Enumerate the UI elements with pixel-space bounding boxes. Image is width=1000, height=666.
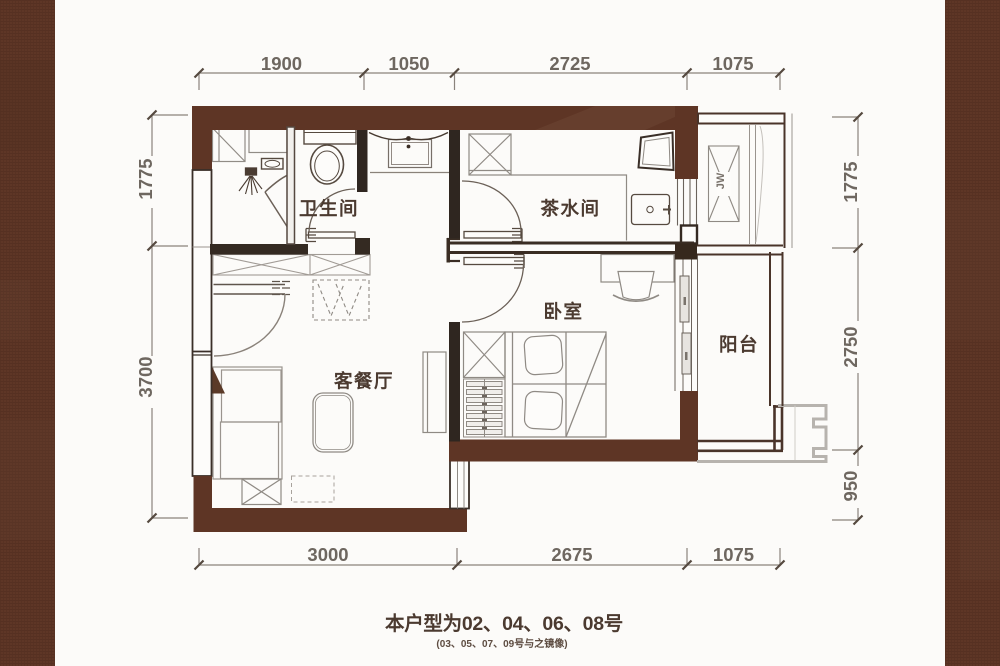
svg-text:1775: 1775 <box>135 158 156 199</box>
svg-text:2750: 2750 <box>840 326 861 367</box>
svg-text:1775: 1775 <box>840 161 861 202</box>
svg-text:3000: 3000 <box>307 544 348 565</box>
svg-text:3700: 3700 <box>135 356 156 397</box>
svg-text:客餐厅: 客餐厅 <box>334 371 394 392</box>
svg-text:2675: 2675 <box>551 544 592 565</box>
svg-text:茶水间: 茶水间 <box>540 198 600 219</box>
svg-text:950: 950 <box>840 471 861 502</box>
svg-text:本户型为02、04、06、08号: 本户型为02、04、06、08号 <box>385 612 623 635</box>
svg-text:1075: 1075 <box>713 544 754 565</box>
svg-text:1075: 1075 <box>712 53 753 74</box>
svg-text:(03、05、07、09号与之镜像): (03、05、07、09号与之镜像) <box>436 637 567 650</box>
svg-text:卫生间: 卫生间 <box>299 198 359 219</box>
svg-text:1050: 1050 <box>388 53 429 74</box>
svg-text:2725: 2725 <box>549 53 590 74</box>
svg-text:JW: JW <box>715 172 727 189</box>
svg-text:卧室: 卧室 <box>543 301 583 322</box>
svg-text:1900: 1900 <box>261 53 302 74</box>
svg-text:阳台: 阳台 <box>719 334 759 355</box>
